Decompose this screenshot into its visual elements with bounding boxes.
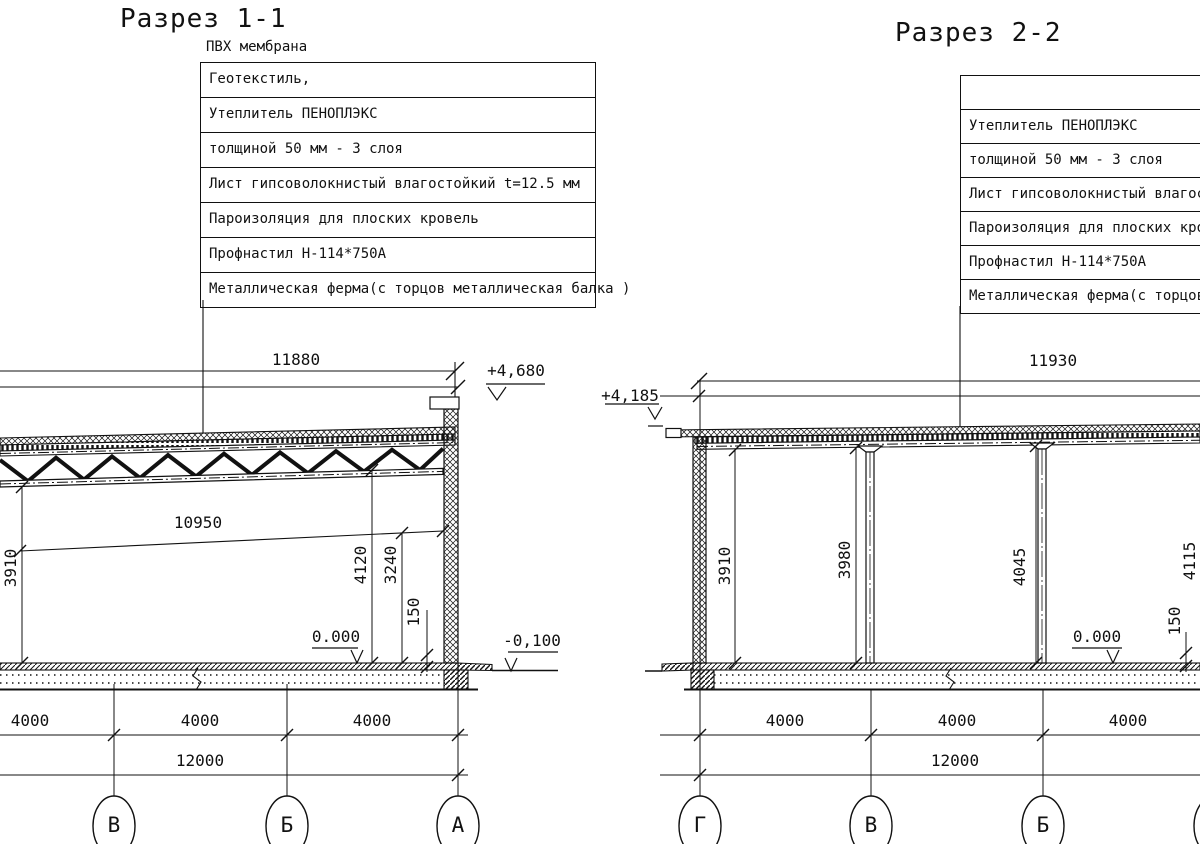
dim-label-3910-s2: 3910 bbox=[715, 521, 737, 611]
section1-callout-box: Геотекстиль, Утеплитель ПЕНОПЛЭКС толщин… bbox=[200, 62, 596, 308]
callout-row: Утеплитель ПЕНОПЛЭКС bbox=[961, 110, 1200, 144]
level-label-zero-s2: 0.000 bbox=[1057, 627, 1137, 646]
section1-bottom-chord bbox=[0, 468, 443, 487]
callout-row: Геотекстиль, bbox=[201, 63, 595, 98]
section2-wall bbox=[693, 437, 706, 663]
axis-bubble-label: А bbox=[1194, 813, 1200, 837]
dim-label-4000: 4000 bbox=[1088, 711, 1168, 730]
axis-bubble-label: В bbox=[850, 813, 892, 837]
callout-row: Профнастил Н-114*750А bbox=[961, 246, 1200, 280]
section1-floor bbox=[0, 663, 558, 690]
callout-row: толщиной 50 мм - 3 слоя bbox=[961, 144, 1200, 178]
callout-row: Металлическая ферма(с торцов металлическ… bbox=[961, 280, 1200, 314]
callout-row: Металлическая ферма(с торцов металлическ… bbox=[201, 273, 595, 308]
callout-row: Утеплитель ПЕНОПЛЭКС bbox=[201, 98, 595, 133]
level-label-grade-s1: -0,100 bbox=[492, 631, 572, 650]
drawing-sheet: Разрез 1-1 ПВХ мембрана Геотекстиль, Уте… bbox=[0, 0, 1200, 844]
axis-bubble-label: А bbox=[437, 813, 479, 837]
callout-row: Лист гипсоволокнистый влагостойкий t=12.… bbox=[201, 168, 595, 203]
section1-membrane-note: ПВХ мембрана bbox=[206, 39, 307, 55]
axis-bubble-label: В bbox=[93, 813, 135, 837]
dim-label-4000: 4000 bbox=[0, 711, 70, 730]
dim-label-12000-s2: 12000 bbox=[915, 751, 995, 770]
axis-bubble-label: Г bbox=[679, 813, 721, 837]
dim-label-4120: 4120 bbox=[351, 520, 373, 610]
callout-row: толщиной 50 мм - 3 слоя bbox=[201, 133, 595, 168]
callout-row: Пароизоляция для плоских кровель bbox=[201, 203, 595, 238]
dim-label-3980: 3980 bbox=[835, 515, 857, 605]
dim-label-4000: 4000 bbox=[745, 711, 825, 730]
section2-callout-box: Утеплитель ПЕНОПЛЭКС толщиной 50 мм - 3 … bbox=[960, 75, 1200, 314]
section1-title: Разрез 1-1 bbox=[120, 4, 287, 34]
section2-top-dims bbox=[660, 373, 1200, 402]
dim-label-4000: 4000 bbox=[917, 711, 997, 730]
dim-label-4045: 4045 bbox=[1010, 522, 1032, 612]
section2-structure bbox=[605, 306, 1200, 844]
dim-label-10950: 10950 bbox=[138, 513, 258, 532]
dim-label-12000-s1: 12000 bbox=[160, 751, 240, 770]
dim-label-4000: 4000 bbox=[332, 711, 412, 730]
axis-bubble-label: Б bbox=[266, 813, 308, 837]
section2-roof bbox=[666, 424, 1200, 449]
callout-row bbox=[961, 76, 1200, 110]
section1-structure bbox=[0, 300, 558, 844]
section1-top-dims bbox=[0, 362, 465, 397]
level-label-roof-s1: +4,680 bbox=[476, 361, 556, 380]
axis-bubble-label: Б bbox=[1022, 813, 1064, 837]
dim-label-3910-s1: 3910 bbox=[1, 523, 23, 613]
dim-label-150-s2: 150 bbox=[1165, 576, 1187, 666]
dim-label-150-s1: 150 bbox=[404, 567, 426, 657]
dim-label-11930: 11930 bbox=[993, 351, 1113, 370]
dim-label-3240: 3240 bbox=[381, 520, 403, 610]
section2-title: Разрез 2-2 bbox=[895, 18, 1062, 48]
dim-label-11880: 11880 bbox=[236, 350, 356, 369]
section2-axis-bubbles bbox=[679, 796, 1200, 844]
level-label-zero-s1: 0.000 bbox=[296, 627, 376, 646]
callout-row: Лист гипсоволокнистый влагостойкий t=12.… bbox=[961, 178, 1200, 212]
callout-row: Профнастил Н-114*750А bbox=[201, 238, 595, 273]
dim-label-4000: 4000 bbox=[160, 711, 240, 730]
callout-row: Пароизоляция для плоских кровель bbox=[961, 212, 1200, 246]
section2-floor bbox=[645, 663, 1200, 690]
level-label-roof-s2: +4,185 bbox=[590, 386, 670, 405]
